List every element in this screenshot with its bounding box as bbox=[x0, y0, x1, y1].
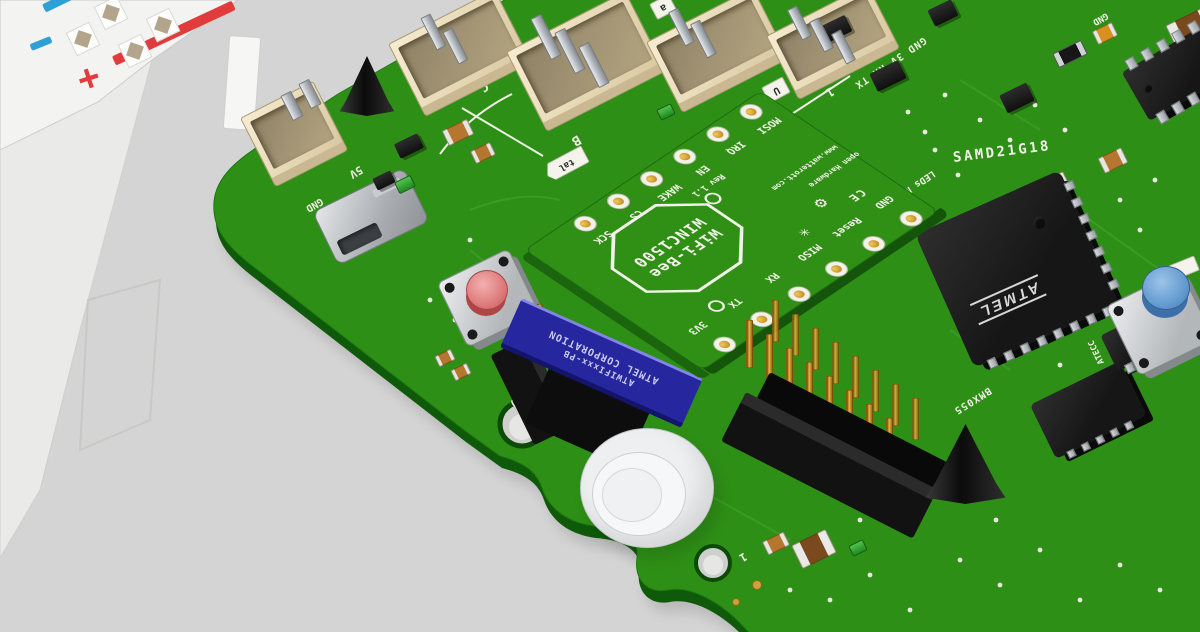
module-pad bbox=[702, 123, 735, 145]
blue-button-cap bbox=[1142, 266, 1190, 310]
piezo-dome-inner bbox=[602, 468, 662, 522]
pin-label-rx: RX bbox=[762, 271, 782, 284]
gold-pin bbox=[852, 356, 859, 398]
pin-label-tx: TX bbox=[724, 296, 744, 309]
gold-via bbox=[753, 581, 762, 590]
gold-pin bbox=[812, 328, 819, 370]
pin-label-miso: MISO bbox=[794, 242, 824, 262]
pin-label-3v3: 3V3 bbox=[685, 319, 710, 336]
mounting-hole-tab bbox=[696, 546, 730, 580]
pin-label-irq: IRQ bbox=[723, 139, 748, 156]
module-pad bbox=[569, 213, 602, 235]
module-pad bbox=[668, 146, 701, 168]
gold-pin bbox=[892, 384, 899, 426]
atmel-logo: ATMEL bbox=[970, 274, 1047, 325]
ce-mark: CE bbox=[844, 187, 870, 204]
star-icon: ✳ bbox=[793, 225, 817, 241]
gold-pin bbox=[792, 314, 799, 356]
red-button-cap bbox=[466, 270, 508, 310]
gold-pin bbox=[746, 320, 753, 368]
pcb-3d-render: + SAMD21G18 GND 3V RX TX LEDs NET WIFI G… bbox=[0, 0, 1200, 632]
breadboard-inset bbox=[80, 280, 160, 450]
gear-icon: ⚙ bbox=[808, 194, 834, 212]
pin-label-gnd: GND bbox=[871, 193, 896, 210]
gold-pin bbox=[772, 300, 779, 342]
module-hole bbox=[704, 298, 728, 314]
gold-via bbox=[733, 599, 740, 606]
gold-pin bbox=[832, 342, 839, 384]
gold-pin bbox=[872, 370, 879, 412]
pin-label-reset: Reset bbox=[829, 215, 864, 238]
gold-pin bbox=[912, 398, 919, 440]
pin-label-en: EN bbox=[692, 163, 712, 176]
module-pad bbox=[602, 190, 635, 212]
module-pad bbox=[635, 168, 668, 190]
module-pad bbox=[735, 101, 768, 123]
